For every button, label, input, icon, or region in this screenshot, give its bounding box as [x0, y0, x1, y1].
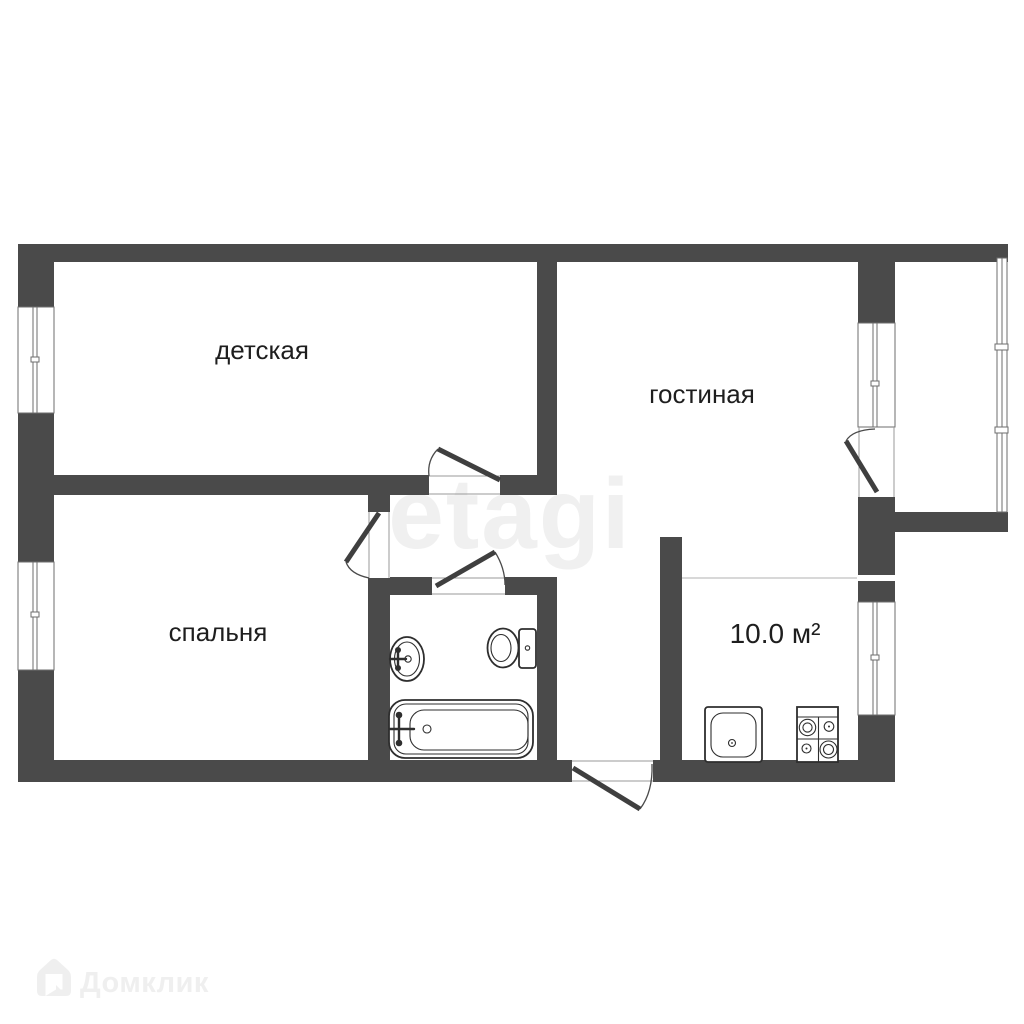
- wall-left-upper: [18, 262, 54, 307]
- wall-balcony-bottom: [895, 512, 1008, 532]
- label-children-room: детская: [215, 335, 309, 365]
- window-children-room: [18, 307, 54, 413]
- wall-left-middle: [18, 413, 54, 562]
- etagi-watermark: etagi: [388, 458, 631, 570]
- window-living-room: [858, 323, 895, 427]
- floor-plan: etagi: [0, 0, 1024, 1024]
- label-bedroom: спальня: [169, 617, 268, 647]
- wall-children-living-divider: [537, 262, 557, 495]
- kitchen-sink: [705, 707, 762, 762]
- wall-bathroom-left: [368, 578, 390, 760]
- bathtub: [389, 700, 533, 758]
- label-kitchen-area: 10.0 м²: [730, 618, 821, 649]
- wall-right-seg2: [858, 497, 895, 576]
- window-balcony: [995, 258, 1008, 512]
- wall-right-seg3: [858, 581, 895, 602]
- wall-children-bottom: [54, 475, 429, 495]
- wall-bathroom-right: [537, 577, 557, 760]
- window-bedroom: [18, 562, 54, 670]
- wall-bedroom-hall-stub: [368, 495, 390, 512]
- wall-right-seg1: [858, 262, 895, 323]
- watermarks: etagi: [388, 458, 631, 570]
- wall-bottom-left: [18, 760, 572, 782]
- wall-break-line: [857, 575, 896, 581]
- window-kitchen: [858, 602, 895, 715]
- wall-bathroom-top-left: [390, 577, 432, 595]
- wall-left-lower: [18, 670, 54, 760]
- label-living-room: гостиная: [649, 379, 755, 409]
- domclick-logo-text: Домклик: [80, 967, 209, 999]
- wall-right-seg4: [858, 715, 895, 782]
- wall-kitchen-left: [660, 537, 682, 760]
- toilet: [488, 629, 537, 669]
- wall-top: [18, 244, 1008, 262]
- bathroom-sink: [390, 637, 424, 681]
- stove: [797, 707, 838, 762]
